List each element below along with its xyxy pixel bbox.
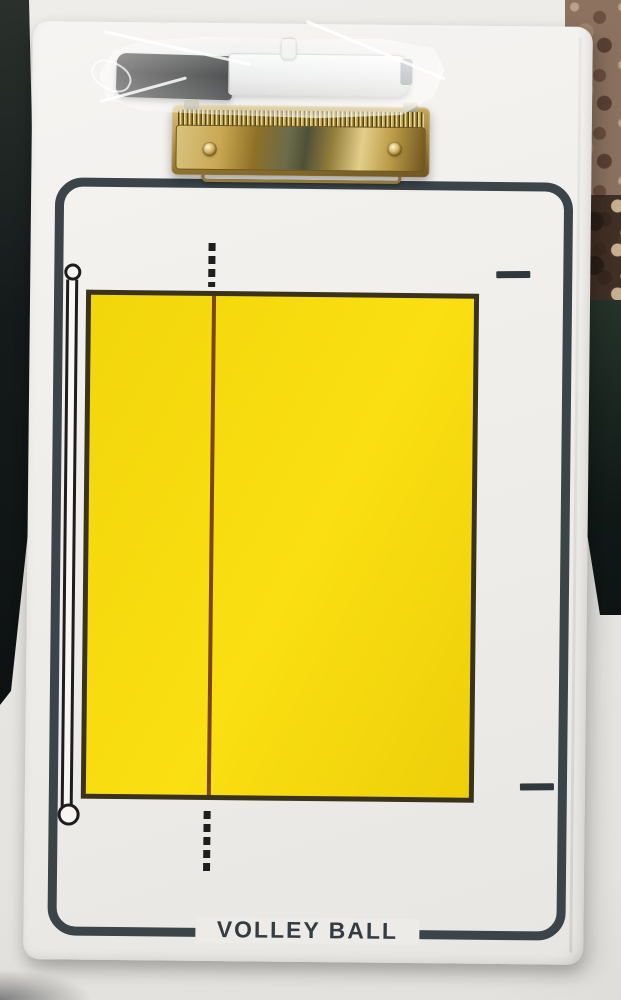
center-line-dashes-bottom — [203, 811, 211, 873]
board-edge-bevel — [569, 37, 582, 953]
court-center-line — [207, 296, 216, 795]
center-line-dashes-top — [208, 243, 215, 287]
floor-corner-shadow — [0, 970, 90, 1000]
marker-plastic-bag — [92, 36, 445, 120]
attack-line-tick-top — [496, 271, 530, 278]
clip-rivet-icon — [388, 142, 402, 156]
volleyball-court — [81, 290, 479, 803]
board-title: VOLLEY BALL — [195, 916, 419, 944]
clip-rivet-icon — [203, 142, 217, 156]
clipboard-board: VOLLEY BALL — [23, 21, 593, 965]
attack-line-tick-bottom — [520, 783, 554, 790]
photo-frame: VOLLEY BALL — [0, 0, 621, 1000]
pole-bottom-ring-icon — [58, 803, 80, 825]
pole-top-ring-icon — [64, 263, 81, 280]
